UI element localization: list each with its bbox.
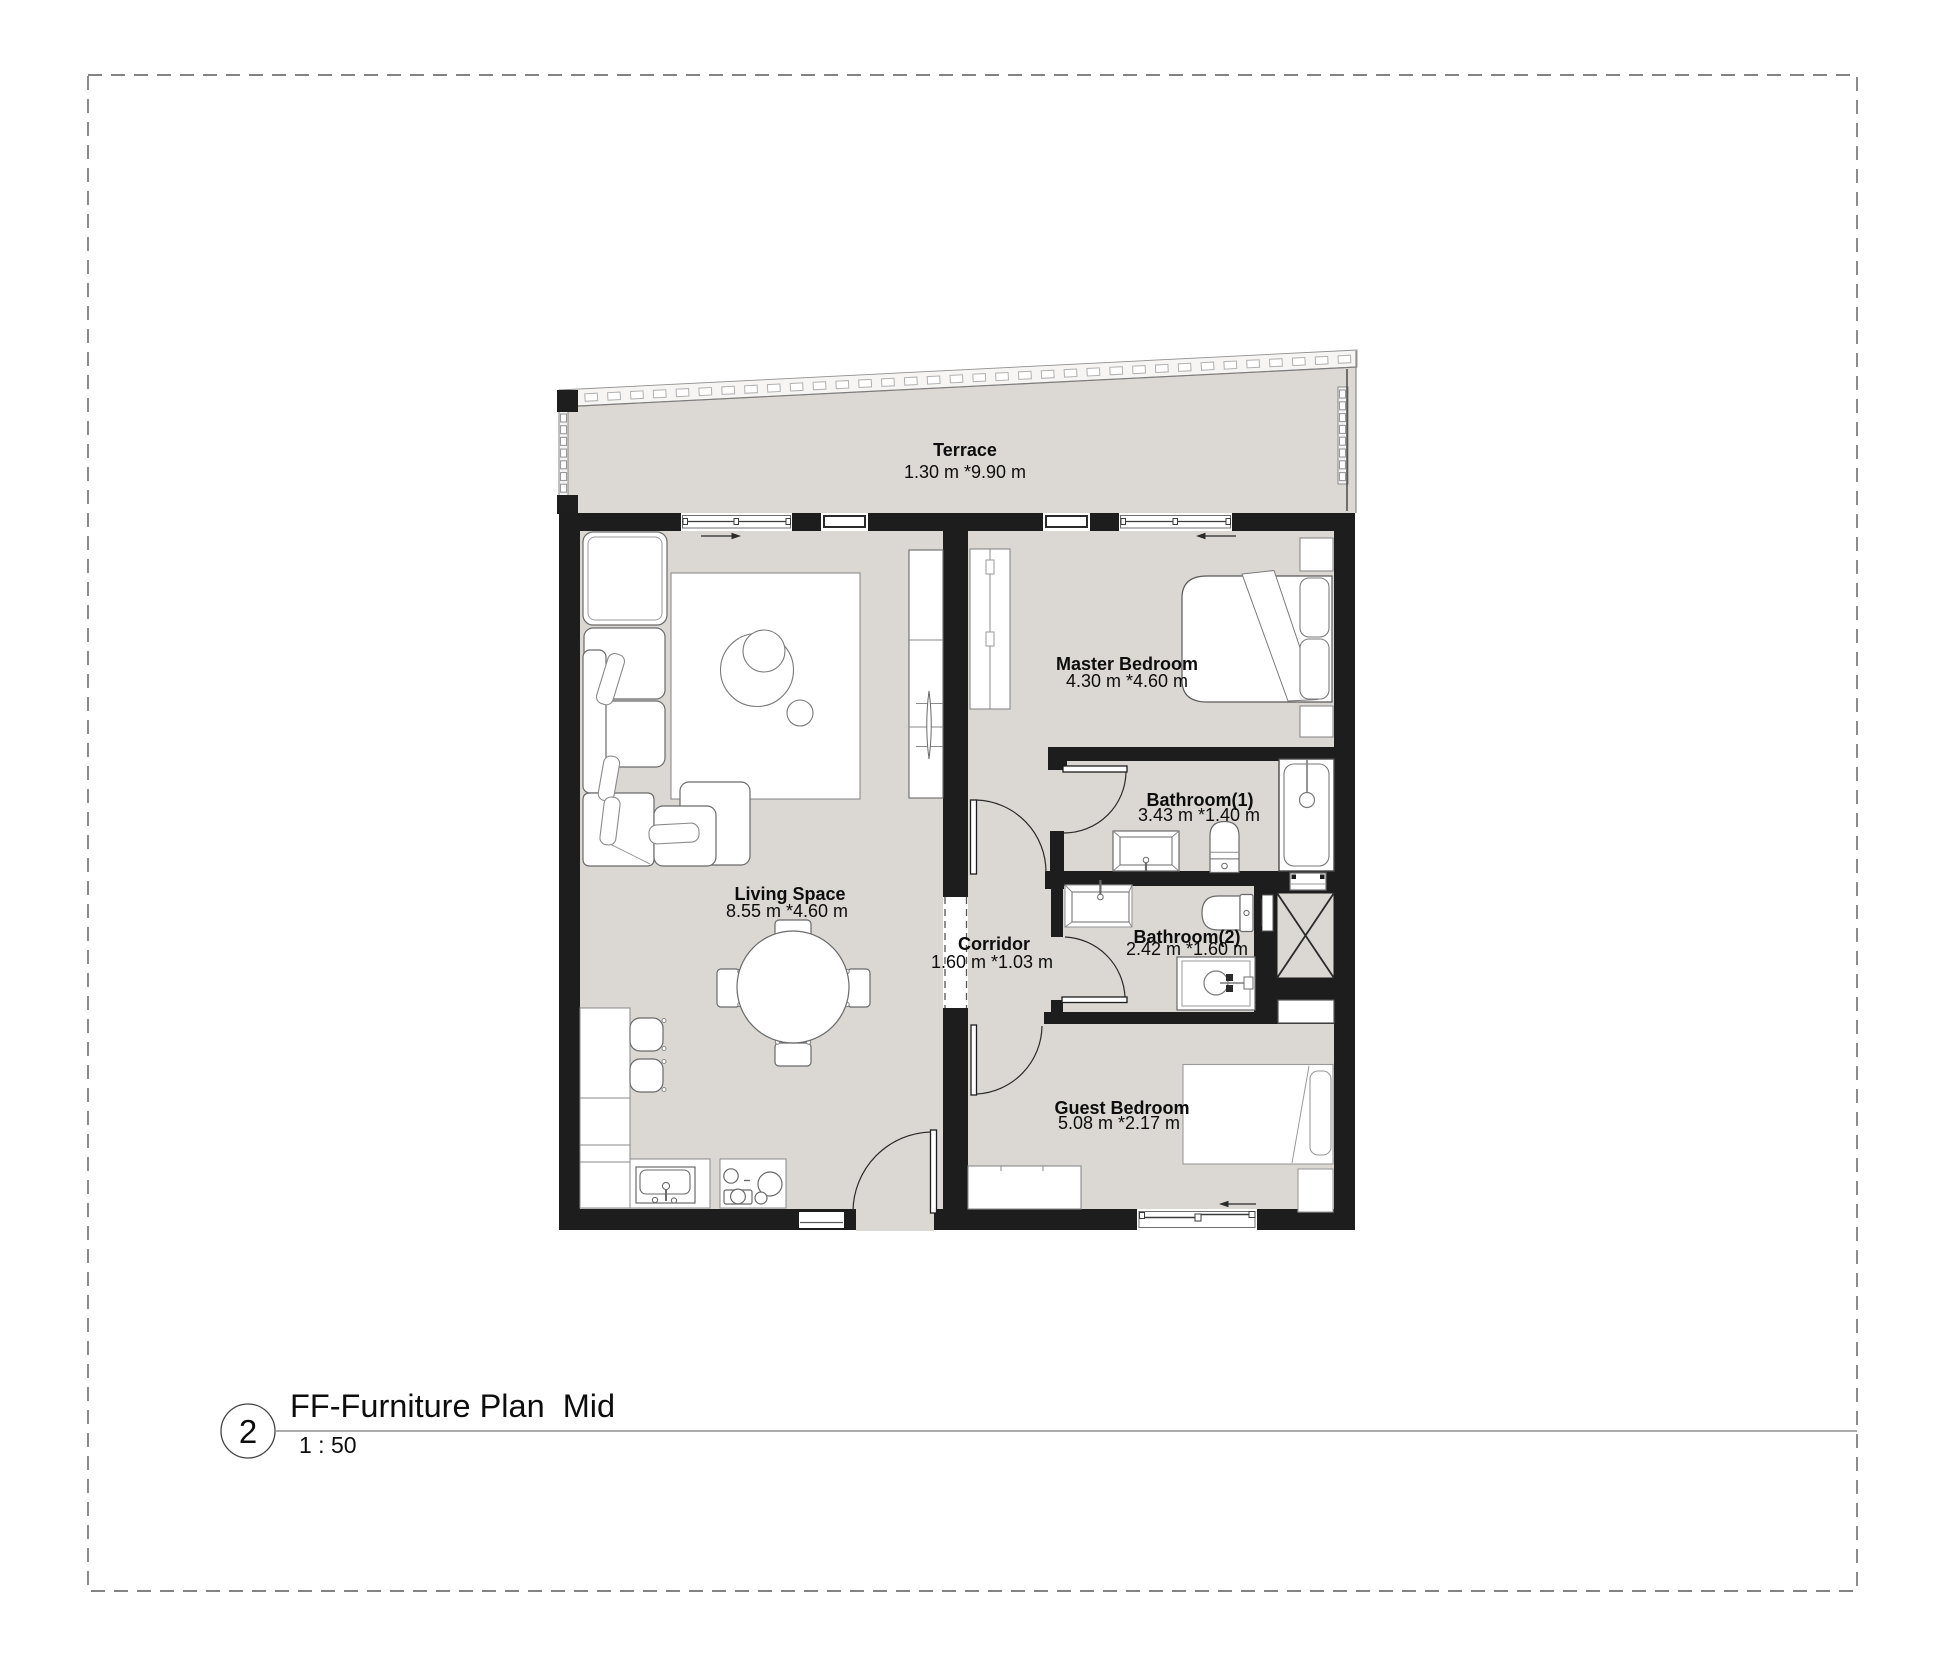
svg-text:2.42 m *1.60 m: 2.42 m *1.60 m xyxy=(1126,939,1248,959)
svg-text:5.08 m *2.17 m: 5.08 m *2.17 m xyxy=(1058,1113,1180,1133)
svg-text:1.30 m *9.90 m: 1.30 m *9.90 m xyxy=(904,462,1026,482)
svg-text:1.60 m *1.03 m: 1.60 m *1.03 m xyxy=(931,952,1053,972)
svg-text:4.30 m *4.60 m: 4.30 m *4.60 m xyxy=(1066,671,1188,691)
svg-text:Corridor: Corridor xyxy=(958,934,1030,954)
svg-text:Terrace: Terrace xyxy=(933,440,997,460)
svg-text:FF-Furniture Plan Mid: FF-Furniture Plan Mid xyxy=(290,1388,615,1424)
svg-text:8.55 m *4.60 m: 8.55 m *4.60 m xyxy=(726,901,848,921)
svg-text:2: 2 xyxy=(239,1413,257,1450)
svg-text:3.43 m *1.40 m: 3.43 m *1.40 m xyxy=(1138,805,1260,825)
svg-text:1 : 50: 1 : 50 xyxy=(299,1432,357,1458)
